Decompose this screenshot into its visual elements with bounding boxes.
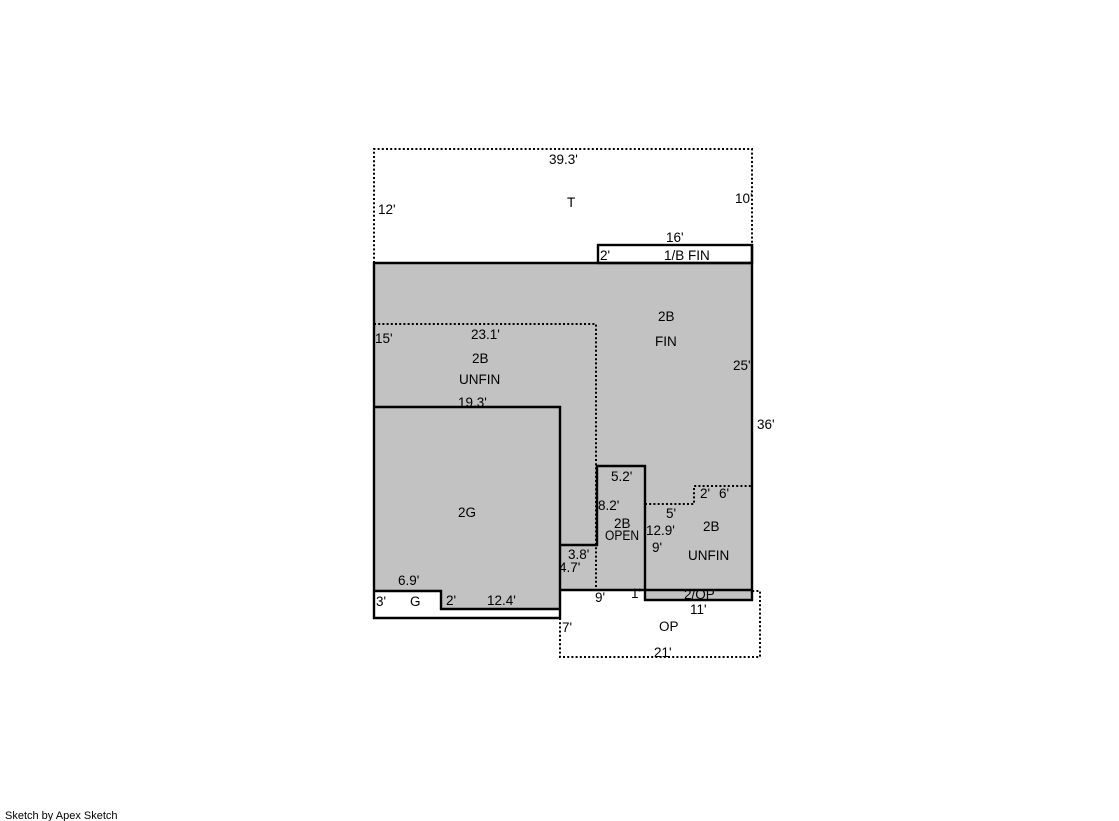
svg-text:2G: 2G <box>458 505 476 520</box>
svg-text:2': 2' <box>446 593 456 608</box>
svg-text:39.3': 39.3' <box>549 152 578 167</box>
svg-text:12': 12' <box>378 202 396 217</box>
svg-text:19.3': 19.3' <box>458 395 487 410</box>
svg-text:OPEN: OPEN <box>605 528 639 543</box>
svg-text:23.1': 23.1' <box>471 327 500 342</box>
svg-text:5.2': 5.2' <box>611 469 632 484</box>
svg-text:9': 9' <box>652 540 662 555</box>
svg-text:36': 36' <box>757 417 775 432</box>
svg-text:3': 3' <box>376 594 386 609</box>
svg-text:12.4': 12.4' <box>487 593 516 608</box>
svg-text:2B: 2B <box>703 519 720 534</box>
svg-text:UNFIN: UNFIN <box>688 548 729 563</box>
svg-text:1': 1' <box>631 586 641 601</box>
svg-text:16': 16' <box>666 230 684 245</box>
svg-text:6': 6' <box>719 486 729 501</box>
svg-text:FIN: FIN <box>655 334 677 349</box>
svg-text:11': 11' <box>690 602 707 617</box>
svg-text:10': 10' <box>735 191 753 206</box>
svg-text:2': 2' <box>700 486 710 501</box>
svg-text:Sketch by Apex Sketch: Sketch by Apex Sketch <box>5 810 118 821</box>
svg-text:4.7': 4.7' <box>559 560 580 575</box>
svg-text:25': 25' <box>733 358 751 373</box>
svg-text:12.9': 12.9' <box>646 523 675 538</box>
svg-text:2B: 2B <box>658 309 675 324</box>
svg-text:1/B FIN: 1/B FIN <box>664 248 710 263</box>
svg-text:8.2': 8.2' <box>598 498 619 513</box>
svg-text:2/OP: 2/OP <box>684 587 715 602</box>
svg-text:G: G <box>410 594 421 609</box>
svg-text:5': 5' <box>666 506 676 521</box>
svg-text:2B: 2B <box>472 351 489 366</box>
svg-text:2': 2' <box>600 248 610 263</box>
svg-text:9': 9' <box>595 590 605 605</box>
svg-text:T: T <box>567 195 575 210</box>
svg-text:7': 7' <box>562 620 572 635</box>
svg-text:6.9': 6.9' <box>398 573 419 588</box>
svg-text:UNFIN: UNFIN <box>459 372 500 387</box>
svg-text:21': 21' <box>654 645 672 660</box>
svg-text:OP: OP <box>659 619 679 634</box>
svg-text:15': 15' <box>375 331 393 346</box>
